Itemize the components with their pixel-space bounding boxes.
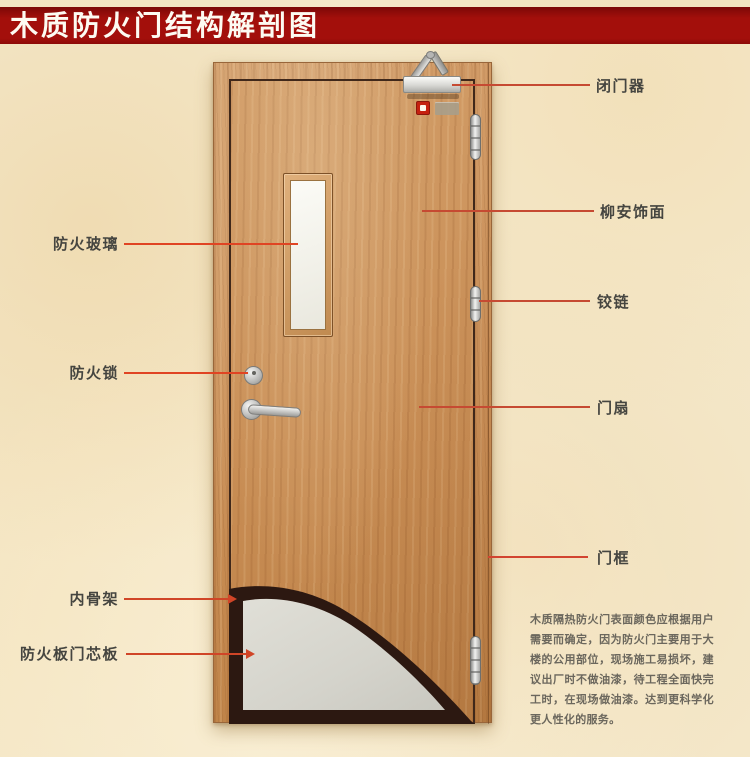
label-veneer: 柳安饰面 [600,204,666,222]
label-fire-lock: 防火锁 [69,365,119,383]
leader-arrow-core-board [246,649,255,659]
label-hinge: 铰链 [597,294,630,312]
keyhole [252,371,256,375]
label-door-leaf: 门扇 [597,400,630,418]
leader-line-inner-skeleton [124,598,228,600]
fire-rating-badge [416,101,430,115]
certification-plate [435,102,459,115]
leader-line-door-closer [452,84,590,86]
hinge-top [470,114,481,160]
page-title: 木质防火门结构解剖图 [0,12,320,40]
leader-line-veneer [422,210,594,212]
label-fire-glass: 防火玻璃 [53,236,119,254]
badge-dot [420,105,426,111]
leader-line-core-board [126,653,246,655]
leader-arrow-inner-skeleton [228,594,237,604]
fire-lock-cylinder [244,366,263,385]
label-door-closer: 闭门器 [596,78,646,96]
leader-line-fire-lock [124,372,248,374]
description-text: 木质隔热防火门表面颜色应根据用户需要而确定，因为防火门主要用于大楼的公用部位，现… [530,610,714,730]
leader-line-fire-glass [124,243,298,245]
leader-line-door-leaf [419,406,590,408]
fire-glass-window [283,173,333,337]
cutaway-section-graphic [229,581,475,724]
fire-door-graphic [213,62,492,723]
hinge-middle [470,286,481,322]
label-door-frame: 门框 [597,550,630,568]
leader-line-hinge [479,300,590,302]
label-core-board: 防火板门芯板 [20,646,119,664]
leader-line-door-frame [488,556,588,558]
title-banner: 木质防火门结构解剖图 [0,7,750,44]
infographic-page: { "title": "木质防火门结构解剖图", "annotations": … [0,0,750,757]
door-closer-knuckle [426,51,435,59]
door-closer-shadow [407,94,459,99]
door-frame-edge-line [488,63,489,724]
glass-pane [290,180,326,330]
label-inner-skeleton: 内骨架 [69,591,119,609]
